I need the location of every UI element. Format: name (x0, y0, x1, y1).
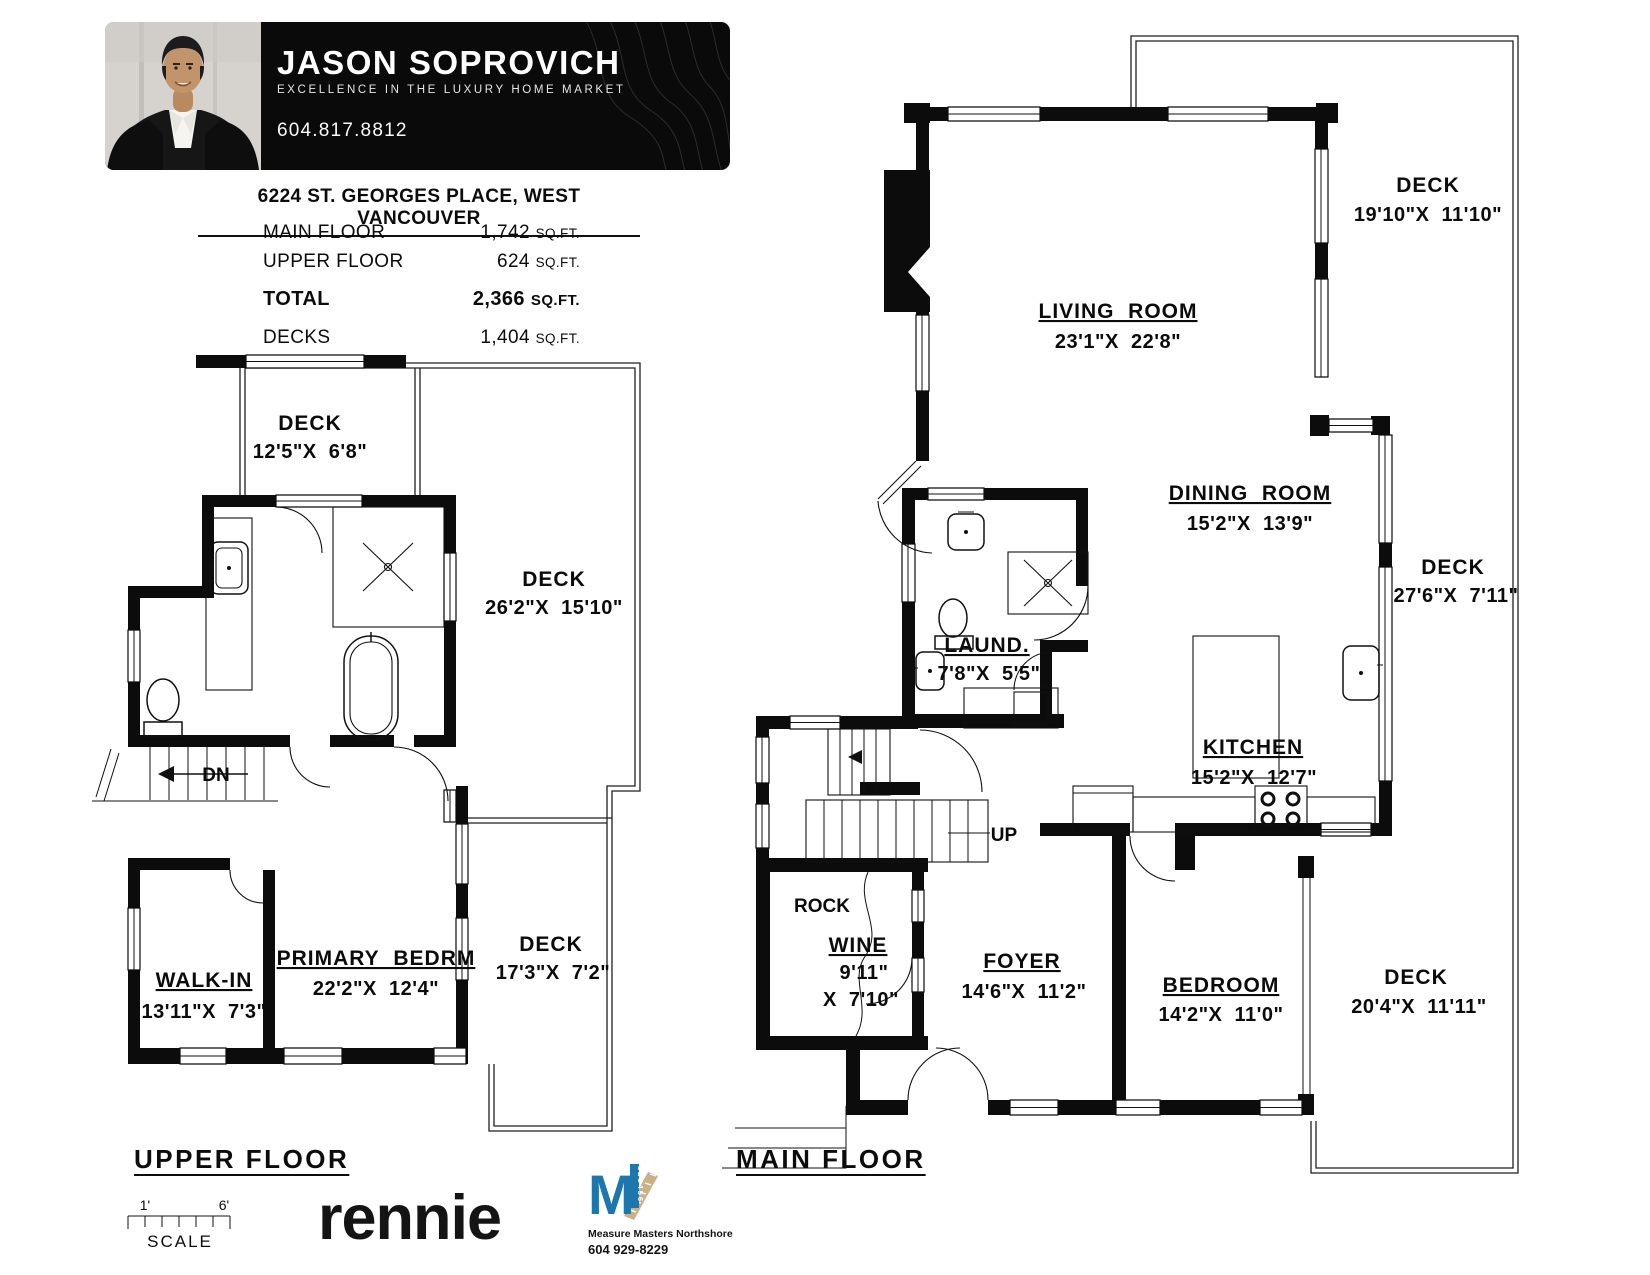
room-dims-kitchen: 15'2"X 12'7" (1191, 767, 1317, 789)
room-name-laundry: LAUND. (944, 634, 1029, 657)
measure-masters-monogram-icon: M 123456 (588, 1158, 668, 1222)
room-dims-living: 23'1"X 22'8" (1055, 331, 1181, 353)
main-floor-title: MAIN FLOOR (736, 1144, 926, 1175)
room-dims-primary: 22'2"X 12'4" (313, 978, 439, 1000)
room-name-bedroom: BEDROOM (1163, 974, 1280, 997)
stairs-down: DN (92, 747, 278, 801)
scale-bar: 1' 6' SCALE (128, 1197, 230, 1251)
room-dims-foyer: 14'6"X 11'2" (961, 981, 1086, 1003)
scale-label: SCALE (147, 1232, 213, 1251)
measure-masters-logo: M 123456 Measure Masters Northshore 604 … (588, 1158, 738, 1257)
scale-end-label: 6' (219, 1197, 229, 1213)
floorplan-page: JASON SOPROVICH EXCELLENCE IN THE LUXURY… (0, 0, 1650, 1275)
sink-icon (948, 512, 984, 550)
upper-floor-title: UPPER FLOOR (134, 1144, 349, 1175)
room-name-kitchen: KITCHEN (1203, 736, 1303, 759)
stairs-label: UP (991, 825, 1018, 846)
stairs-arrow (158, 766, 174, 782)
svg-text:M: M (588, 1163, 635, 1222)
room-dims-wine-1: 9'11" (839, 962, 888, 984)
room-name-dining: DINING ROOM (1169, 482, 1332, 505)
agent-tagline: EXCELLENCE IN THE LUXURY HOME MARKET (277, 84, 730, 96)
room-dims-dining: 15'2"X 13'9" (1187, 513, 1313, 535)
room-dims-deck-right: 26'2"X 15'10" (485, 597, 623, 619)
room-dims-deck-top: 12'5"X 6'8" (253, 441, 368, 463)
upper-floor-plan: DN DECK 12'5"X 6'8" DECK 26'2"X 15'10" W… (92, 355, 640, 1131)
main-floor-plan: UP (722, 36, 1519, 1173)
shower-icon (333, 507, 444, 627)
agent-phone: 604.817.8812 (277, 120, 730, 142)
stairs-up: UP (806, 729, 1018, 862)
room-name-deck-top: DECK (1396, 174, 1460, 197)
room-name-primary: PRIMARY BEDRM (277, 947, 476, 970)
room-dims-deck-top: 19'10"X 11'10" (1354, 204, 1502, 226)
sink-icon (1343, 646, 1383, 700)
measure-masters-name: Measure Masters Northshore (588, 1229, 738, 1241)
room-name-foyer: FOYER (983, 950, 1060, 973)
scale-start-label: 1' (140, 1197, 150, 1213)
rennie-logo: rennie (318, 1182, 501, 1254)
room-name-deck-bottom: DECK (519, 933, 583, 956)
room-name-deck-right: DECK (522, 568, 586, 591)
measure-masters-phone: 604 929-8229 (588, 1243, 738, 1258)
agent-info: JASON SOPROVICH EXCELLENCE IN THE LUXURY… (261, 22, 730, 170)
room-name-deck-bottom: DECK (1384, 966, 1448, 989)
room-name-deck-right: DECK (1421, 556, 1485, 579)
room-name-walk-in: WALK-IN (156, 969, 253, 992)
bathtub-icon (344, 632, 398, 740)
window-mullions (762, 114, 1385, 1108)
toilet-icon (144, 679, 182, 736)
room-dims-deck-bottom: 20'4"X 11'11" (1351, 996, 1487, 1018)
agent-name: JASON SOPROVICH (277, 46, 730, 79)
room-dims-laundry: 7'8"X 5'5" (938, 663, 1041, 685)
fireplace-icon (884, 170, 930, 312)
door-arc (230, 507, 448, 903)
room-name-rock: ROCK (794, 896, 850, 917)
floorplan-drawing: DN DECK 12'5"X 6'8" DECK 26'2"X 15'10" W… (0, 0, 1650, 1275)
room-dims-bedroom: 14'2"X 11'0" (1158, 1004, 1283, 1026)
svg-text:123456: 123456 (636, 1166, 645, 1203)
stairs-arrow (848, 750, 862, 764)
room-name-living: LIVING ROOM (1039, 300, 1198, 323)
room-dims-deck-right: 27'6"X 7'11" (1393, 585, 1518, 607)
room-name-deck-top: DECK (278, 412, 342, 435)
stairs-label: DN (202, 765, 229, 786)
room-name-wine: WINE (829, 934, 888, 957)
room-dims-walk-in: 13'11"X 7'3" (141, 1001, 266, 1023)
room-dims-wine-2: X 7'10" (823, 989, 899, 1011)
room-dims-deck-bottom: 17'3"X 7'2" (496, 962, 611, 984)
